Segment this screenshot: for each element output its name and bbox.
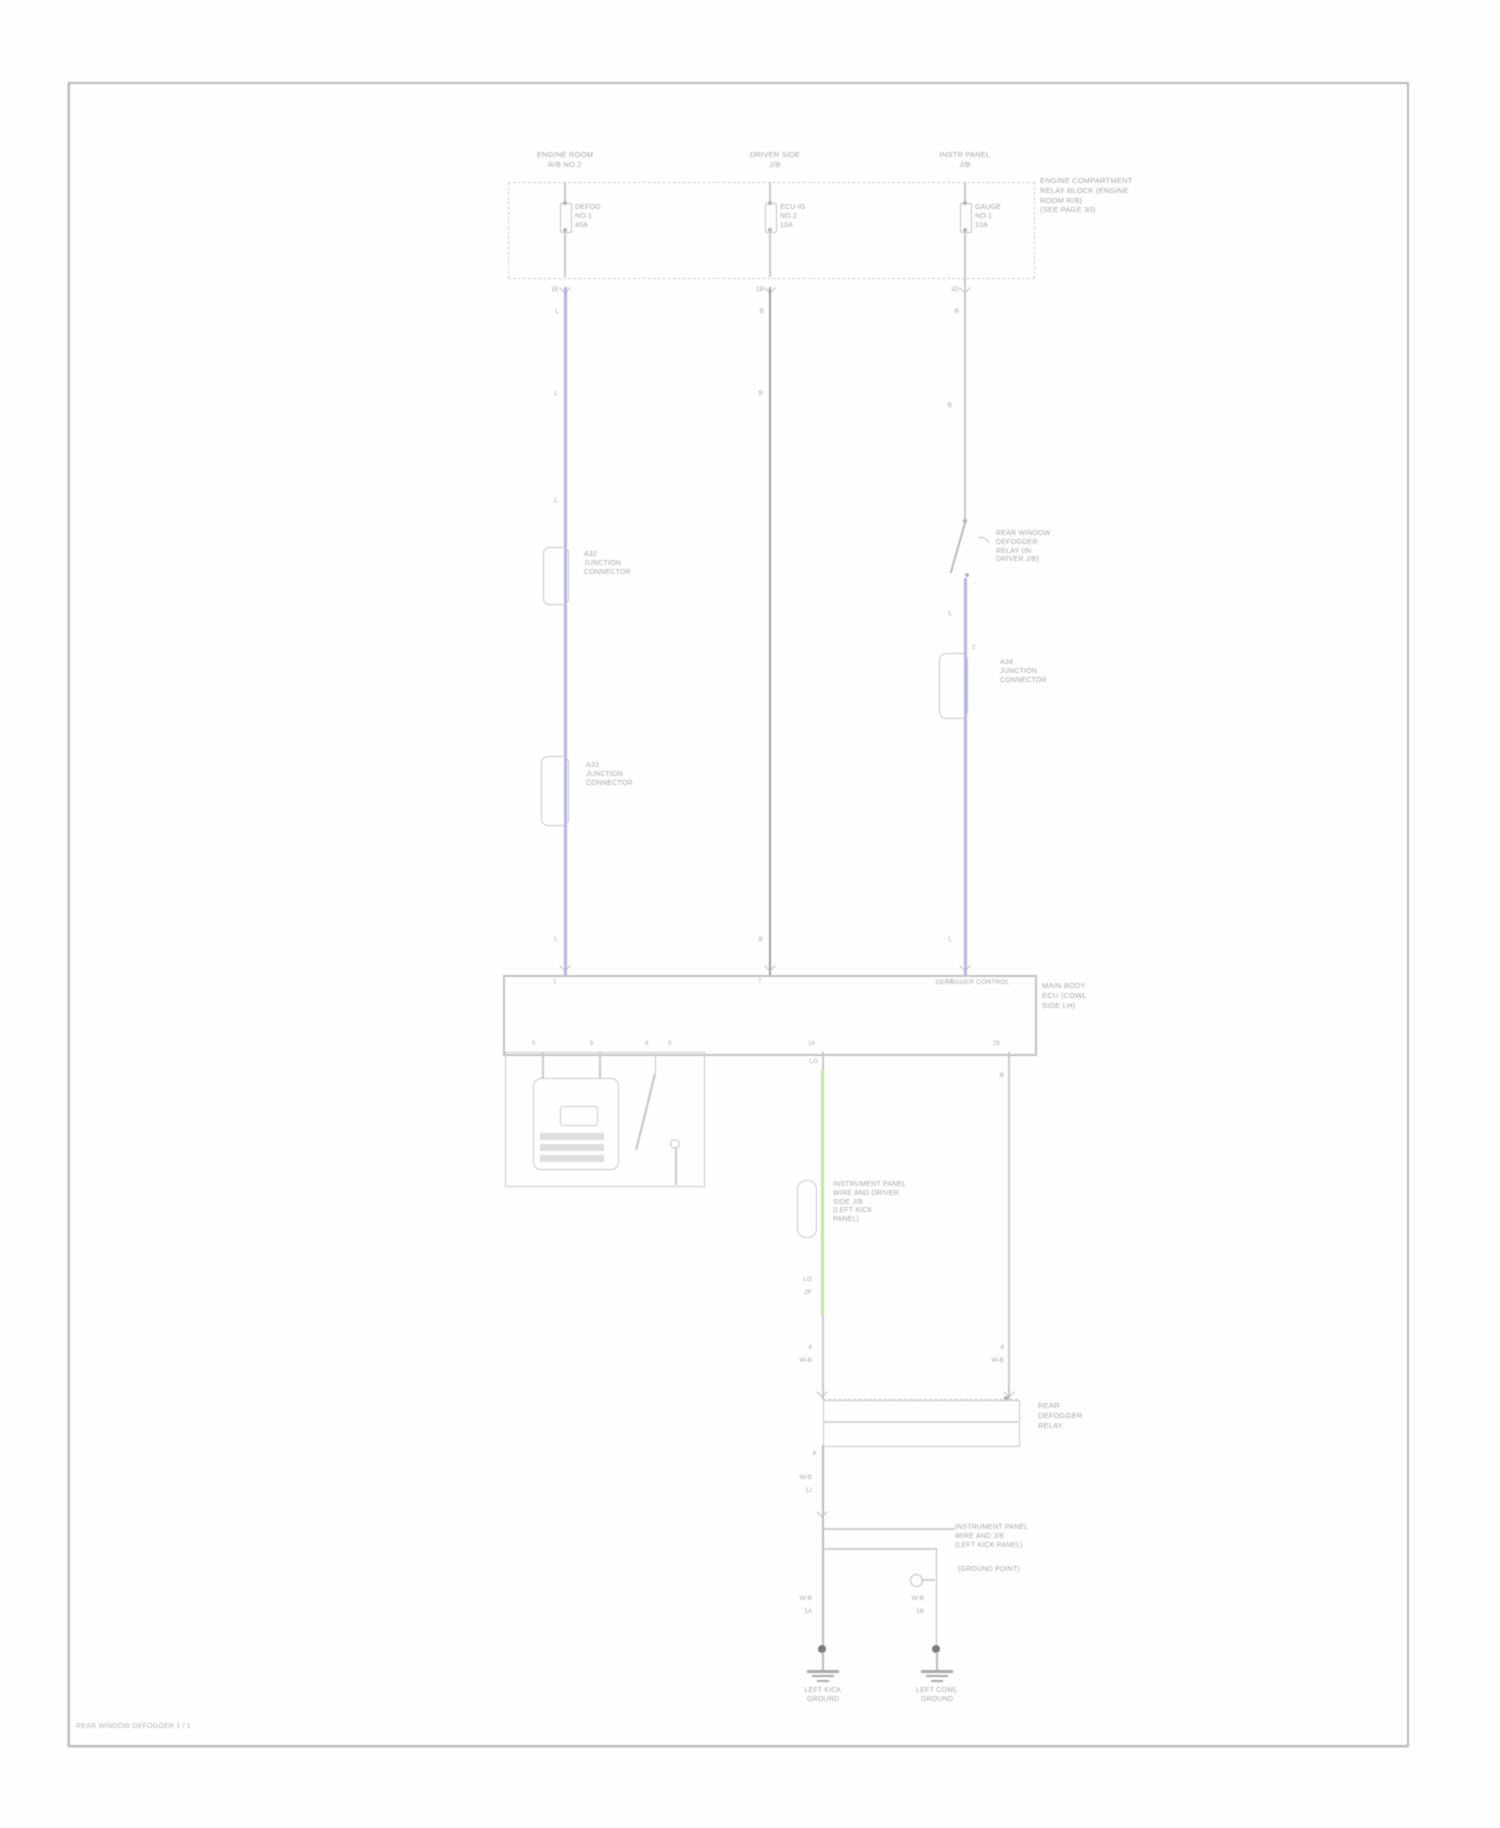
wire-label: 1B (740, 286, 764, 293)
wire-label: 4 (980, 1344, 1004, 1351)
green-branch-stub (822, 1052, 824, 1070)
switch-lead (655, 1052, 657, 1074)
gp-row-line1 (823, 1528, 955, 1530)
wire-green (821, 1070, 824, 1315)
junction-connector-icon (541, 756, 569, 826)
pin-label: 1 (553, 979, 556, 985)
meter-hatch (540, 1133, 604, 1140)
relay-row-box (823, 1400, 1020, 1447)
wire-label: B (980, 1072, 1004, 1079)
wire-label: B (739, 390, 763, 397)
gp-row-label: INSTRUMENT PANELWIRE AND J/B(LEFT KICK P… (955, 1524, 1028, 1550)
pin-label: 6 (590, 1041, 593, 1047)
meter-hatch (540, 1155, 604, 1162)
meter-lead (599, 1052, 601, 1078)
wire-label: W-B (788, 1357, 812, 1364)
ip-connector-label: INSTRUMENT PANELWIRE AND DRIVERSIDE J/B … (833, 1181, 906, 1225)
ground2-lead (936, 1652, 938, 1670)
relay-row-label: REARDEFOGGERRELAY (1038, 1401, 1083, 1430)
ground1-symbol (817, 1680, 829, 1682)
ground1-symbol (807, 1670, 839, 1673)
fuse1-stub (564, 182, 566, 203)
fuse-block-note: ENGINE COMPARTMENTRELAY BLOCK (ENGINE RO… (1040, 176, 1133, 215)
fuse2-stub (769, 182, 771, 203)
page-border-frame (68, 82, 1409, 1747)
wire-label: L (534, 497, 558, 504)
fuse3-stub2 (964, 231, 966, 277)
ground1-label: LEFT KICKGROUND (780, 1687, 866, 1705)
junction-connector-1-label: A32JUNCTIONCONNECTOR (584, 551, 631, 577)
wire-label: B (740, 308, 764, 315)
wire-label: L (928, 936, 952, 943)
relay-terminal-dot (965, 573, 969, 577)
indicator-window-icon (560, 1106, 598, 1126)
meter-lead (542, 1052, 544, 1078)
wire-label: W-B (980, 1357, 1004, 1364)
page-footer: REAR WINDOW DEFOGGER 1 / 1 (76, 1723, 191, 1732)
fuse2-stub2 (769, 231, 771, 277)
fuse1-dot-top (563, 201, 567, 205)
fuse2-dot-top (768, 201, 772, 205)
junction-connector-icon (543, 547, 569, 605)
pin-label: 2 (972, 645, 975, 651)
gp-tie-line (921, 1579, 935, 1581)
wire-label: L (928, 610, 952, 617)
main-ecu-box (503, 975, 1037, 1056)
wire-label: B (739, 936, 763, 943)
ground1-lead (822, 1652, 824, 1670)
wire-label: L (534, 936, 558, 943)
wire-label: 1D (935, 286, 959, 293)
meter-hatch (540, 1144, 604, 1151)
wire-col3-blue (964, 578, 967, 975)
relay-row-midline (823, 1421, 1018, 1423)
relay-row-dashed-edge (823, 1399, 1018, 1400)
fuse2-label: ECU-IGNO.210A (780, 204, 806, 230)
ground2-symbol (921, 1670, 953, 1673)
wire-label: LG (788, 1276, 812, 1283)
wire-label: 4 (788, 1344, 812, 1351)
ground2-symbol (931, 1680, 943, 1682)
wire-label: 1A (788, 1608, 812, 1615)
ground1-symbol (812, 1675, 834, 1677)
pin-label: 14 (808, 1041, 815, 1047)
fuse-col1-header: ENGINE ROOMR/B NO.2 (505, 150, 625, 170)
wire-label: 1J (788, 1487, 812, 1494)
wire-col3-gray (964, 277, 966, 520)
ground2-symbol (926, 1675, 948, 1677)
junction-connector-icon (939, 653, 968, 719)
pin-label: 28 (993, 1041, 1000, 1047)
wire-col2-gray (769, 287, 772, 975)
ecu-inner-label: DEFOGGER CONTROL (920, 979, 1025, 987)
gp-row-sublabel: (GROUND POINT) (958, 1566, 1020, 1575)
wiring-diagram-page: ENGINE ROOMR/B NO.2 DRIVER SIDEJ/B INSTR… (0, 0, 1500, 1828)
wire-right-branch (1008, 1052, 1010, 1400)
ip-connector-icon (797, 1180, 817, 1238)
pin-label: 9 (668, 1041, 671, 1047)
fuse-col2-header: DRIVER SIDEJ/B (715, 150, 835, 170)
pin-label: 5 (532, 1041, 535, 1047)
fuse3-dot-top (963, 201, 967, 205)
wire-label: B (928, 402, 952, 409)
wire-label: 4 (792, 1450, 816, 1457)
junction-connector-2-label: A33JUNCTIONCONNECTOR (586, 762, 633, 788)
switch-lead (675, 1147, 677, 1185)
fuse1-stub2 (564, 231, 566, 277)
fuse3-stub (964, 182, 966, 203)
wire-label: LG (794, 1058, 818, 1065)
fuse3-label: GAUGENO.110A (975, 204, 1001, 230)
wire-label: 2F (788, 1289, 812, 1296)
wire-label: L (534, 390, 558, 397)
pin-label: 8 (645, 1041, 648, 1047)
wire-label: L (535, 308, 559, 315)
wire-label: B (935, 308, 959, 315)
diagram-sheet: ENGINE ROOMR/B NO.2 DRIVER SIDEJ/B INSTR… (0, 0, 1500, 1828)
pin-label: 7 (758, 979, 761, 985)
wire-to-ground2 (936, 1548, 938, 1652)
wire-col1-blue (564, 287, 567, 975)
wire-label: 1B (900, 1608, 924, 1615)
wire-label: W-B (788, 1474, 812, 1481)
wire-label: W-B (788, 1595, 812, 1602)
wire-label: 1E (535, 286, 559, 293)
relay-row-dot (1004, 1396, 1008, 1400)
junction-connector-3-label: A34JUNCTIONCONNECTOR (1000, 659, 1047, 685)
relay-label: REAR WINDOWDEFOGGERRELAY (INDRIVER J/B) (996, 530, 1050, 565)
ecu-side-label: MAIN BODYECU (COWLSIDE LH) (1042, 981, 1087, 1010)
ground-point-circle (910, 1574, 923, 1587)
gp-row-line2 (823, 1548, 937, 1550)
fuse-col3-header: INSTR PANELJ/B (905, 150, 1025, 170)
fuse1-label: DEFOGNO.140A (575, 204, 601, 230)
ground2-label: LEFT COWLGROUND (894, 1687, 980, 1705)
wire-label: W-B (900, 1595, 924, 1602)
